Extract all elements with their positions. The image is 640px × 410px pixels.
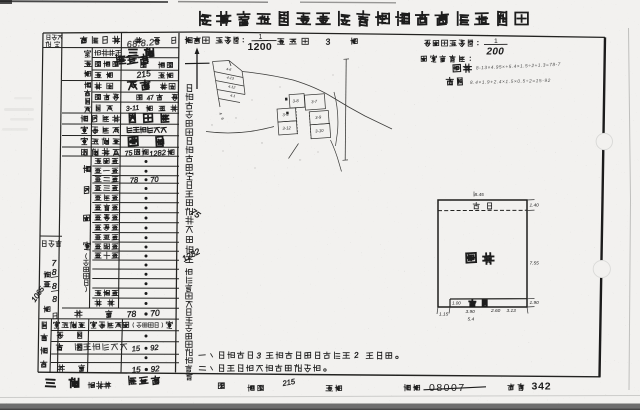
svg-text:1: 1 — [259, 34, 263, 41]
svg-text:5.4: 5.4 — [468, 317, 475, 323]
svg-text:75: 75 — [124, 150, 133, 158]
svg-text:1.40: 1.40 — [530, 203, 540, 209]
svg-text:342: 342 — [532, 381, 552, 393]
svg-text:1200: 1200 — [248, 41, 273, 53]
svg-text:8.45: 8.45 — [475, 192, 485, 198]
svg-text:3-9: 3-9 — [315, 114, 322, 119]
svg-text:1.90: 1.90 — [530, 300, 540, 306]
svg-text:8: 8 — [52, 281, 57, 291]
svg-text:1.15: 1.15 — [439, 312, 449, 318]
svg-text:8: 8 — [52, 267, 57, 277]
svg-text:8: 8 — [52, 294, 57, 304]
svg-text:1282: 1282 — [149, 148, 167, 159]
svg-text:15: 15 — [131, 365, 141, 375]
svg-text:92: 92 — [150, 364, 160, 374]
svg-text:3-11: 3-11 — [126, 105, 140, 113]
svg-text:3-8: 3-8 — [292, 98, 299, 103]
svg-text:70: 70 — [150, 308, 161, 319]
svg-text:78: 78 — [129, 175, 139, 185]
svg-text:2.60: 2.60 — [490, 308, 501, 314]
svg-text:3.13: 3.13 — [507, 308, 517, 314]
svg-text:3-12: 3-12 — [282, 125, 291, 131]
svg-text:3-7: 3-7 — [311, 99, 318, 104]
svg-text:3: 3 — [257, 352, 262, 361]
svg-text:3.90: 3.90 — [466, 309, 476, 315]
svg-text:3-10: 3-10 — [315, 128, 324, 134]
svg-text:200: 200 — [486, 47, 505, 58]
svg-text:7.55: 7.55 — [530, 261, 540, 267]
svg-text:70: 70 — [150, 175, 160, 185]
svg-text:78: 78 — [126, 309, 137, 320]
svg-text:215: 215 — [135, 68, 152, 80]
svg-text:1: 1 — [494, 38, 498, 45]
svg-text:1.00: 1.00 — [452, 301, 461, 306]
